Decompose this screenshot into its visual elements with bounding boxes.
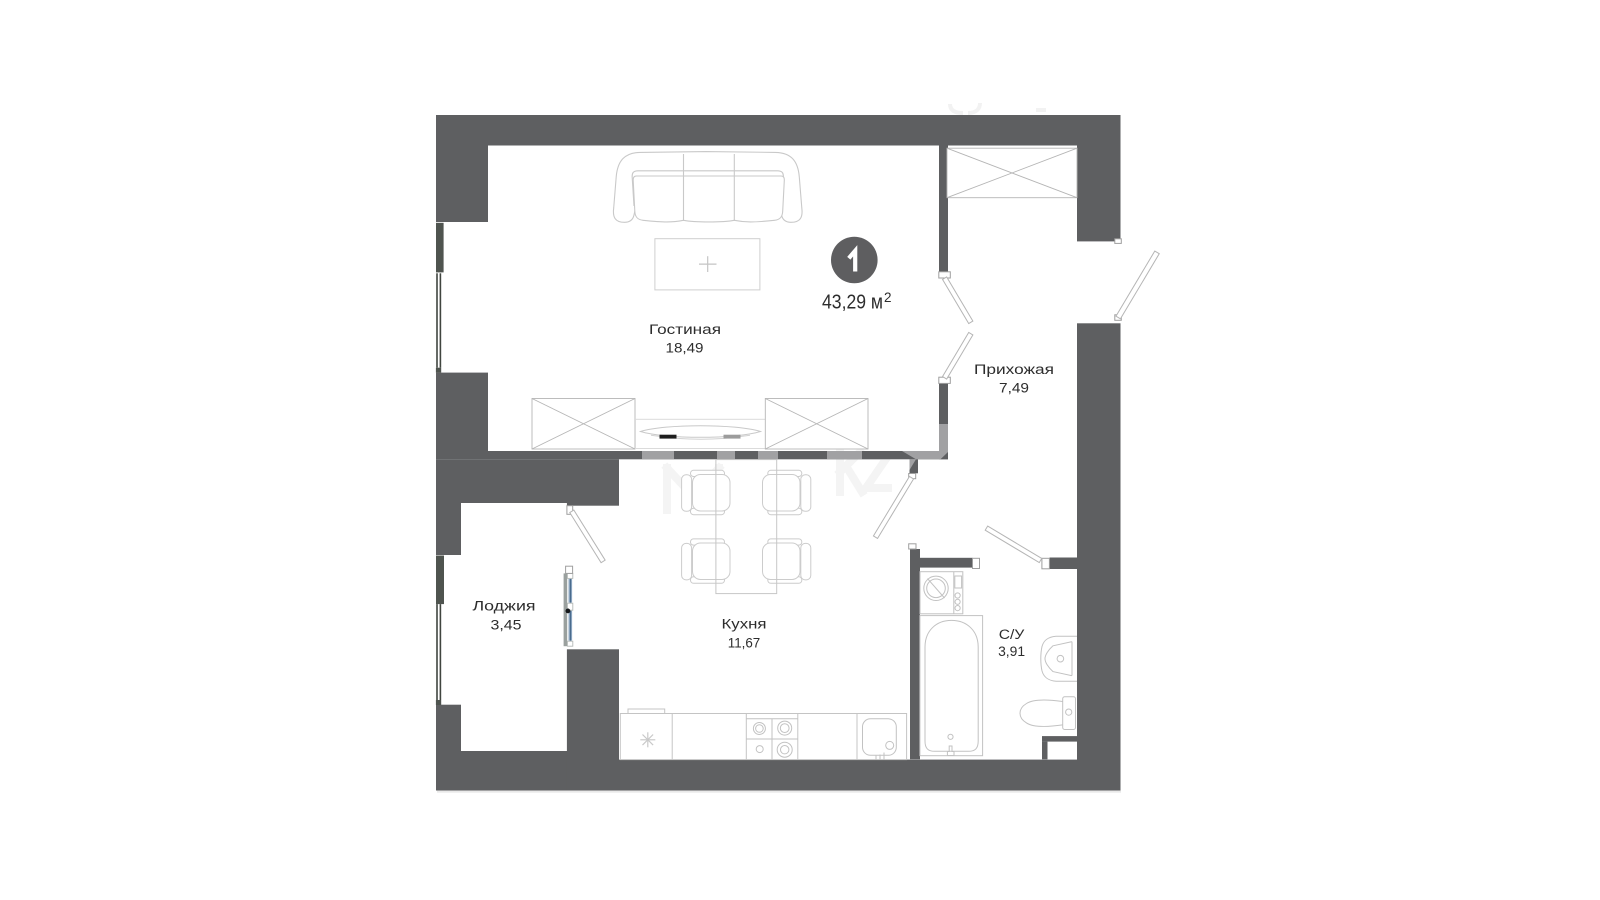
svg-text:2: 2	[884, 290, 892, 305]
svg-text:Кухня: Кухня	[722, 616, 767, 632]
svg-text:3,91: 3,91	[998, 644, 1025, 660]
svg-text:7,49: 7,49	[999, 381, 1029, 397]
svg-text:11,67: 11,67	[728, 635, 761, 651]
svg-text:Гостиная: Гостиная	[649, 322, 721, 338]
svg-text:С/У: С/У	[999, 627, 1026, 643]
svg-text:Лоджия: Лоджия	[473, 598, 536, 614]
svg-text:3,45: 3,45	[491, 618, 522, 634]
svg-text:18,49: 18,49	[666, 341, 704, 357]
svg-text:Прихожая: Прихожая	[974, 362, 1054, 378]
svg-text:43,29 м: 43,29 м	[822, 291, 883, 314]
